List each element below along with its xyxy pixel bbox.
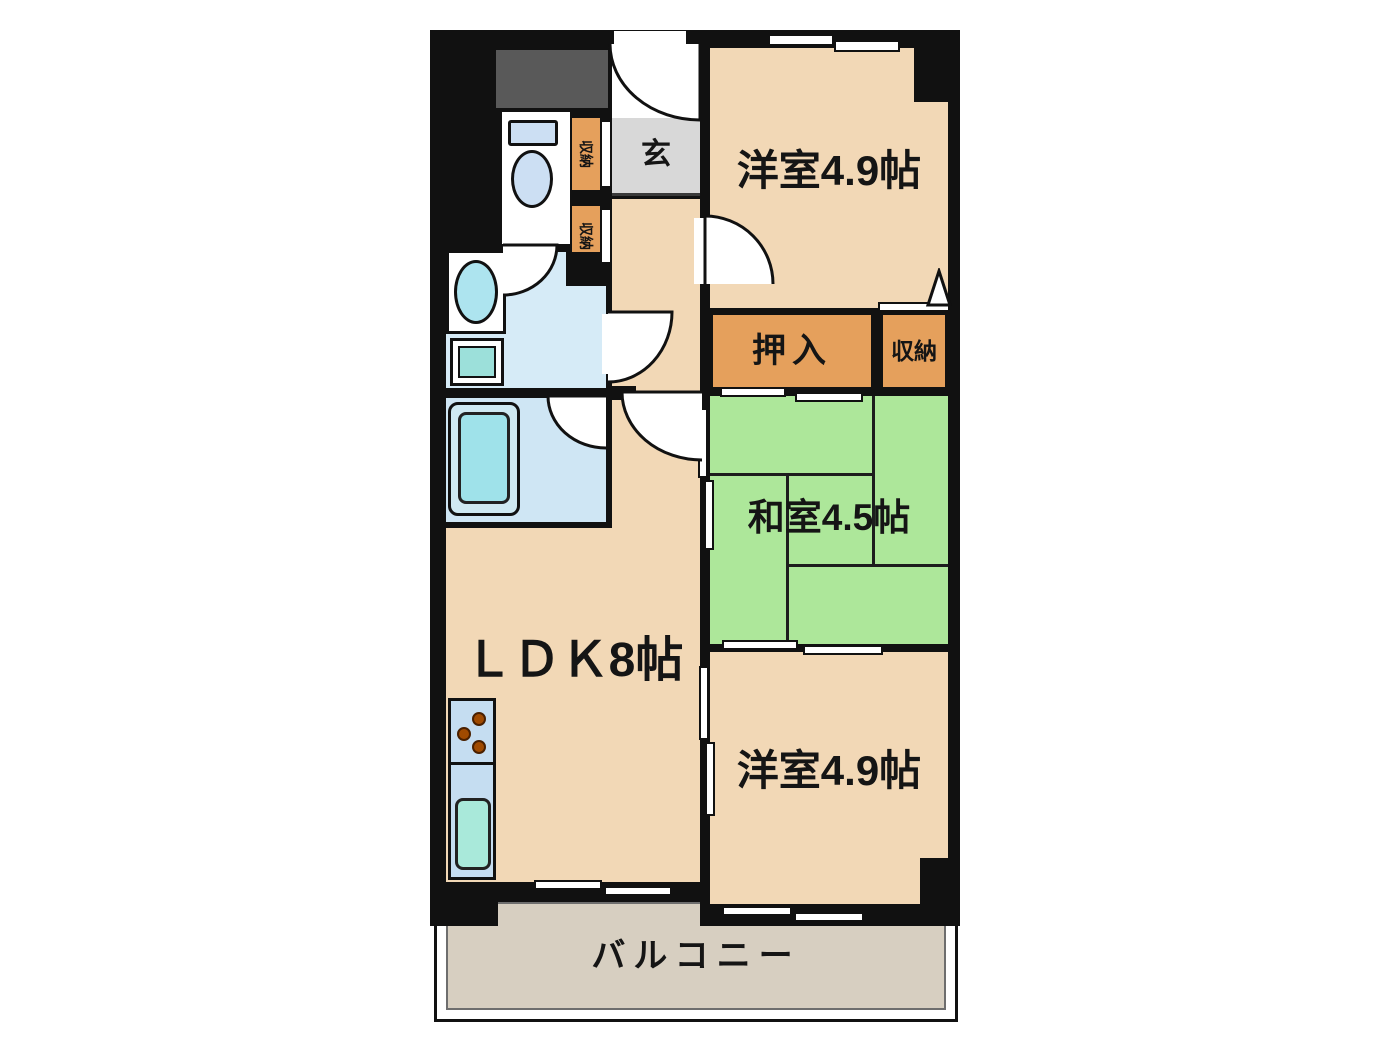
toilet-bowl-icon: [511, 150, 553, 208]
tatami-line-v1: [872, 396, 875, 566]
toilet-door-arc: [499, 241, 561, 299]
wall-notch-top-right: [914, 44, 960, 102]
hall-closet-upper-label-text: 収納: [579, 140, 593, 168]
storage-label-text: 収納: [891, 340, 937, 363]
bedroom-top-door-arc: [701, 214, 775, 288]
ldk-label-text: ＬＤＫ8帖: [465, 637, 684, 685]
oshiire-label: 押入: [710, 312, 874, 390]
japanese-room-label: 和室4.5帖: [710, 494, 948, 540]
oshiire-label-text: 押入: [752, 334, 832, 368]
western-room-top-label-text: 洋室4.9帖: [737, 150, 921, 192]
genkan-label: 玄: [612, 118, 700, 192]
washroom-door-arc: [604, 308, 678, 386]
genkan-label-text: 玄: [641, 140, 671, 170]
stove-burner-icon-3: [472, 740, 486, 754]
ldk-label: ＬＤＫ8帖: [446, 632, 702, 690]
balcony-label: バルコニー: [446, 934, 946, 978]
storage-label: 収納: [880, 312, 948, 390]
fusuma-bottom-right: [803, 645, 883, 655]
hall-closet-lower-label: 収納: [570, 204, 602, 268]
service-box: [496, 50, 608, 108]
ldk-door-arc: [616, 388, 704, 464]
window-top-left-sash: [768, 34, 834, 46]
tatami-line-h1: [710, 473, 875, 476]
window-top-right-sash: [834, 40, 900, 52]
toilet-tank-icon: [508, 120, 558, 146]
balcony-label-text: バルコニー: [591, 939, 800, 973]
kitchen-sink-icon: [455, 798, 491, 870]
japanese-room-label-text: 和室4.5帖: [748, 499, 910, 536]
washer-icon: [458, 346, 496, 378]
bedroom-balcony-sash-left: [722, 906, 792, 916]
wall-bottom-left: [430, 886, 498, 926]
bedroom-balcony-sash-right: [794, 912, 864, 922]
bathroom-door-arc: [544, 392, 610, 452]
ldk-balcony-sash-right: [604, 886, 672, 896]
hall-closet-lower-label-text: 収納: [579, 222, 593, 250]
stove-burner-icon-2: [472, 712, 486, 726]
wall-notch-bottom-right: [920, 858, 960, 908]
tatami-line-h2: [786, 564, 948, 567]
entrance-door-arc: [608, 42, 702, 122]
western-room-top-label: 洋室4.9帖: [710, 146, 948, 196]
floor-plan: 玄 洋室4.9帖 押入 収納 和室4.5帖 ＬＤＫ8帖 洋室4.9帖 バルコニー…: [0, 0, 1400, 1050]
bathtub-inner: [458, 412, 510, 504]
triangle-marker: [926, 268, 952, 308]
stove-burner-icon-1: [457, 727, 471, 741]
ldk-balcony-sash-left: [534, 880, 602, 890]
vanity-sink-icon: [454, 260, 498, 324]
kitchen-counter-divider: [448, 762, 496, 765]
fusuma-top-right: [795, 392, 863, 402]
western-room-bottom-label: 洋室4.9帖: [710, 746, 948, 796]
fusuma-bottom-left: [722, 640, 798, 650]
western-room-bottom-label-text: 洋室4.9帖: [737, 750, 921, 792]
hall-closet-upper-label: 収納: [570, 116, 602, 192]
